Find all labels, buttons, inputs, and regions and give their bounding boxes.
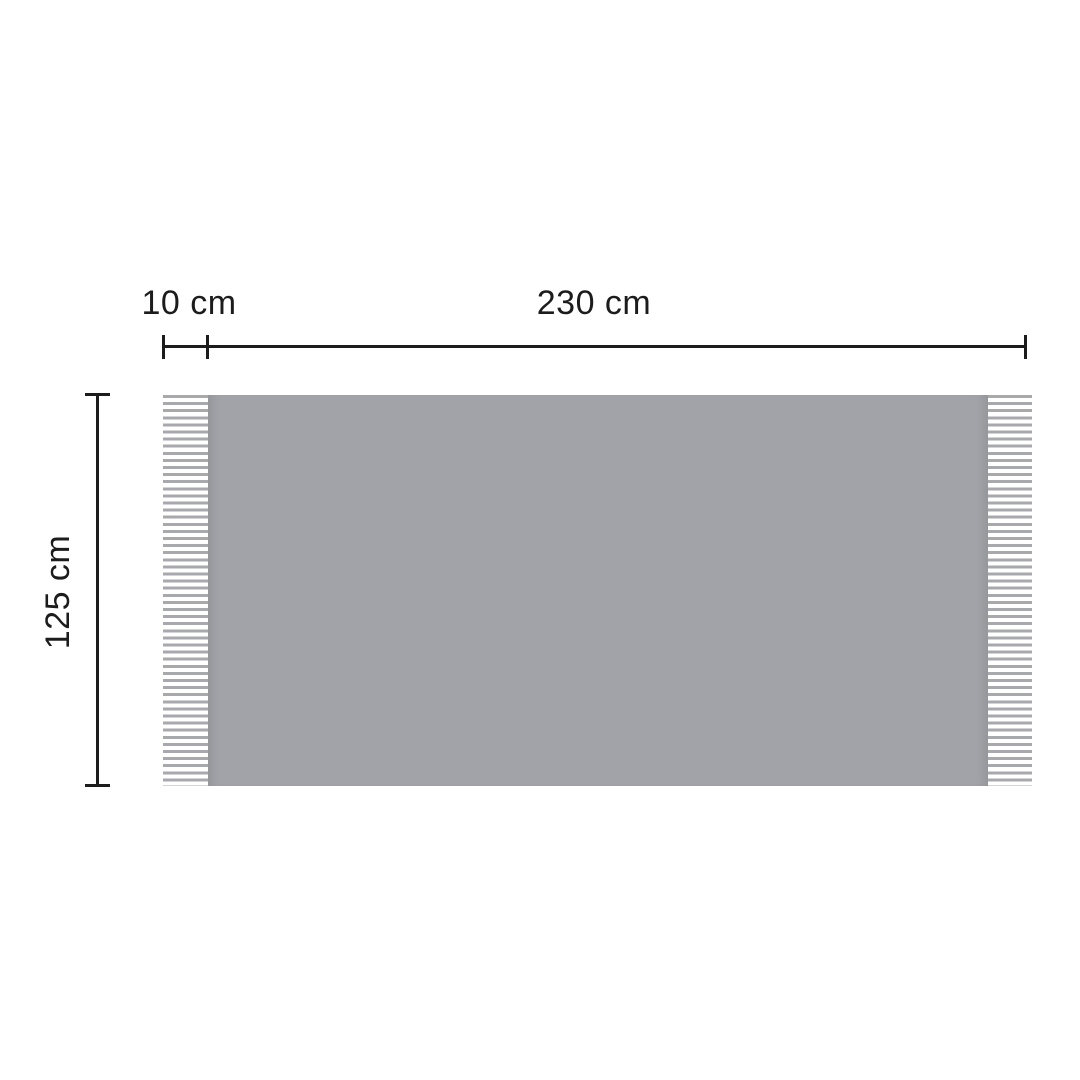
fringe-left bbox=[163, 395, 208, 786]
fringe-width-label: 10 cm bbox=[141, 286, 236, 320]
height-label: 125 cm bbox=[41, 535, 75, 650]
fringe-right bbox=[988, 395, 1032, 786]
product-dimension-diagram: 10 cm 230 cm 125 cm bbox=[0, 0, 1080, 1080]
blanket-illustration bbox=[163, 395, 1032, 786]
height-dimension-line bbox=[96, 394, 99, 786]
height-dimension-tick-top bbox=[85, 393, 110, 396]
width-dimension-tick-right bbox=[1024, 335, 1027, 359]
blanket-body bbox=[208, 395, 988, 786]
width-dimension-tick-left bbox=[162, 335, 165, 359]
height-dimension-tick-bottom bbox=[85, 784, 110, 787]
width-label: 230 cm bbox=[537, 286, 652, 320]
width-dimension-line bbox=[163, 345, 1026, 348]
fringe-dimension-tick bbox=[206, 335, 209, 359]
